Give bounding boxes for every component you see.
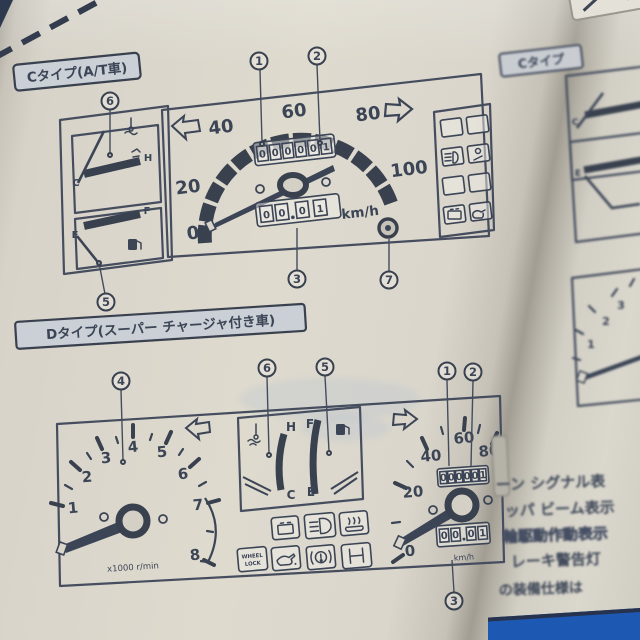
d-type-section: Dタイプ(スーパー チャージャ付き車) bbox=[15, 304, 505, 610]
high-beam-cell bbox=[304, 512, 336, 539]
svg-text:C: C bbox=[572, 118, 579, 128]
trip-digit: 0 bbox=[263, 210, 271, 222]
right-text-line-3: 輪駆動作動表示 bbox=[503, 524, 609, 546]
tach-1: 1 bbox=[67, 499, 79, 518]
fuel-band bbox=[313, 420, 318, 494]
d-speed-0: 0 bbox=[404, 542, 416, 561]
speed-unit-label: km/h bbox=[341, 203, 380, 223]
tachometer-numbers: 1 2 3 4 5 6 7 8 bbox=[67, 438, 204, 565]
callout-2-c: 2 bbox=[309, 48, 326, 146]
right-partial-tachometer: 3 2 1 bbox=[572, 268, 640, 406]
tach-8: 8 bbox=[189, 546, 201, 565]
supercharger-cell bbox=[339, 511, 369, 536]
tach-2: 2 bbox=[81, 468, 93, 487]
callout-6-c: 6 bbox=[102, 93, 119, 158]
wheel-lock-cell: WHEEL LOCK bbox=[237, 546, 268, 571]
center-gauge-box bbox=[238, 407, 363, 511]
tach-4: 4 bbox=[127, 438, 139, 457]
right-tach-needle bbox=[584, 357, 640, 378]
right-tach-2: 2 bbox=[602, 315, 610, 328]
temp-low-label: C bbox=[72, 178, 79, 189]
d-type-center-gauges: H F C E bbox=[238, 407, 363, 511]
right-tach-3: 3 bbox=[617, 299, 625, 312]
top-right-partial-figure bbox=[568, 0, 640, 21]
diagram-art: Cタイプ(A/T車) C H E bbox=[0, 0, 640, 640]
right-text-line-5: の装備仕様は bbox=[499, 579, 584, 599]
turn-signal-right-icon bbox=[393, 410, 417, 429]
right-text-line-4: レーキ警告灯 bbox=[511, 550, 602, 571]
trip-digit: 0 bbox=[452, 530, 460, 541]
trip-digit: 1 bbox=[316, 204, 324, 216]
svg-text:5: 5 bbox=[321, 360, 329, 374]
c-type-side-gauges: C H E F bbox=[60, 106, 172, 274]
odo-digit: 0 bbox=[463, 471, 471, 482]
speed-tick-40: 40 bbox=[207, 116, 234, 140]
d-speed-20: 20 bbox=[402, 482, 424, 502]
right-page: Cタイプ C E 3 2 1 bbox=[491, 45, 640, 599]
svg-text:E: E bbox=[575, 169, 581, 179]
right-tach-1: 1 bbox=[587, 338, 595, 351]
callout-6-d: 6 bbox=[259, 360, 276, 458]
fuel-high-label: F bbox=[144, 206, 151, 217]
trip-digit: 1 bbox=[479, 528, 487, 539]
speed-tick-0: 0 bbox=[186, 222, 201, 244]
svg-text:5: 5 bbox=[102, 295, 110, 309]
right-page-text-block: ーン シグナル表 ッパ ビーム表示 輪駆動作動表示 レーキ警告灯 の装備仕様は bbox=[496, 472, 615, 599]
callout-3-c: 3 bbox=[289, 228, 306, 288]
callout-4-d: 4 bbox=[113, 373, 130, 465]
indicator-cells bbox=[440, 115, 492, 224]
d-type-warning-lights: WHEEL LOCK bbox=[237, 511, 372, 572]
c-type-label: Cタイプ(A/T車) bbox=[13, 52, 141, 90]
svg-text:2: 2 bbox=[469, 365, 477, 379]
d-type-label: Dタイプ(スーパー チャージャ付き車) bbox=[15, 304, 306, 349]
screw-dot bbox=[322, 178, 330, 186]
blue-table-corner bbox=[488, 600, 640, 640]
temp-hand-icon bbox=[132, 149, 140, 157]
fuel-pump-icon bbox=[128, 239, 141, 250]
tach-needle-tail bbox=[56, 542, 67, 555]
screw-dot bbox=[100, 513, 108, 521]
tach-unit-label: x1000 r/min bbox=[107, 561, 159, 575]
turn-signal-right-icon bbox=[385, 99, 412, 121]
trip-digit: 0 bbox=[440, 531, 448, 542]
odo-digit: 0 bbox=[471, 471, 479, 482]
d-odometer: 0 0 0 0 0 1 bbox=[437, 465, 489, 487]
right-tach-needle-tail bbox=[577, 371, 588, 383]
trip-digit: 0 bbox=[298, 206, 306, 218]
blue-surface bbox=[488, 607, 640, 640]
c-type-section: Cタイプ(A/T車) C H E bbox=[13, 48, 494, 311]
d-speedo-hub bbox=[448, 491, 476, 519]
svg-text:6: 6 bbox=[263, 361, 271, 375]
odo-digit: 1 bbox=[322, 142, 330, 154]
speed-tick-100: 100 bbox=[389, 157, 429, 182]
speed-tick-60: 60 bbox=[280, 100, 307, 124]
screw-dot bbox=[159, 515, 167, 523]
screw-dot bbox=[429, 506, 437, 514]
manual-page-photo: Cタイプ(A/T車) C H E bbox=[0, 0, 640, 640]
odo-digit: 0 bbox=[259, 149, 267, 161]
oil-warning-cell bbox=[271, 546, 301, 571]
svg-text:3: 3 bbox=[450, 594, 458, 608]
trip-reset-knob-center bbox=[385, 225, 391, 231]
thermometer-icon bbox=[125, 118, 137, 135]
right-partial-fuel-gauge: E bbox=[570, 132, 640, 242]
screw-dot bbox=[484, 496, 492, 504]
tach-3: 3 bbox=[100, 449, 112, 468]
fuel-low-label: E bbox=[307, 485, 315, 499]
fourwd-cell bbox=[341, 542, 372, 568]
coolant-temp-icon bbox=[248, 424, 260, 445]
d-speed-unit-label: km/h bbox=[454, 552, 475, 562]
battery-warning-cell bbox=[271, 516, 300, 540]
turn-signal-left-icon bbox=[186, 419, 210, 439]
temp-low-label: C bbox=[287, 488, 296, 502]
odo-digit: 1 bbox=[479, 470, 487, 481]
trip-digit: 0 bbox=[278, 208, 286, 220]
callout-1-d: 1 bbox=[439, 363, 456, 467]
svg-text:7: 7 bbox=[385, 273, 393, 287]
svg-text:4: 4 bbox=[117, 374, 125, 388]
needle-hub bbox=[280, 175, 306, 195]
callout-3-d: 3 bbox=[446, 560, 463, 610]
odo-digit: 0 bbox=[284, 146, 292, 158]
temp-band bbox=[279, 434, 284, 490]
tach-7: 7 bbox=[192, 496, 204, 515]
odo-digit: 0 bbox=[309, 143, 317, 155]
temp-gauge-band bbox=[84, 161, 140, 174]
d-speed-40: 40 bbox=[420, 446, 442, 466]
fuel-high-label: F bbox=[306, 417, 314, 431]
right-c-type-label: Cタイプ bbox=[499, 45, 583, 77]
callout-7-c: 7 bbox=[381, 239, 398, 289]
screw-dot bbox=[256, 185, 264, 193]
turn-signal-left-icon bbox=[172, 116, 200, 139]
svg-text:1: 1 bbox=[443, 364, 451, 378]
odo-digit: 0 bbox=[297, 145, 305, 157]
right-text-line-1: ーン シグナル表 bbox=[496, 472, 607, 494]
right-text-line-2: ッパ ビーム表示 bbox=[505, 498, 615, 520]
svg-text:1: 1 bbox=[255, 54, 263, 68]
svg-text:3: 3 bbox=[293, 272, 301, 286]
brake-warning-cell bbox=[306, 545, 336, 570]
trip-digit: 0 bbox=[467, 529, 475, 540]
temp-high-label: H bbox=[286, 420, 296, 434]
fuel-pump-icon bbox=[336, 424, 349, 435]
temp-high-label: H bbox=[144, 153, 152, 164]
d-type-tachometer: 1 2 3 4 5 6 7 8 x1000 r/min bbox=[51, 419, 219, 575]
dashed-cut-line bbox=[0, 0, 116, 58]
odo-digit: 0 bbox=[440, 473, 448, 484]
speed-tick-20: 20 bbox=[174, 176, 201, 200]
tach-6: 6 bbox=[177, 465, 189, 484]
svg-text:2: 2 bbox=[313, 49, 321, 63]
odo-digit: 0 bbox=[455, 472, 463, 483]
odo-digit: 0 bbox=[448, 472, 456, 483]
d-trip-odometer: 0 0 0 1 bbox=[436, 522, 490, 547]
odometer: 0 0 0 0 0 1 bbox=[253, 134, 336, 166]
corner-hatches bbox=[243, 472, 358, 495]
odo-digit: 0 bbox=[271, 148, 279, 160]
svg-text:6: 6 bbox=[106, 94, 114, 108]
fuel-low-label: E bbox=[72, 230, 79, 241]
tach-5: 5 bbox=[156, 443, 168, 462]
speed-tick-80: 80 bbox=[354, 103, 381, 127]
tach-hub bbox=[119, 507, 147, 535]
